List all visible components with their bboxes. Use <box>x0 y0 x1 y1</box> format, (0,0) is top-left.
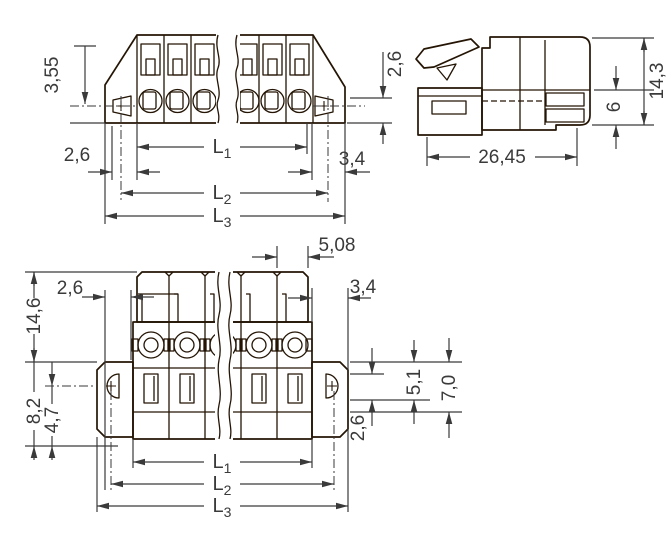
side-connector-body <box>416 37 590 135</box>
connector-technical-drawing: 3,55 2,6 2,6 3,4 L1 L2 L3 <box>0 0 671 536</box>
side-dimensions: 14,3 6 26,45 <box>427 38 668 168</box>
dim-back-right-offset: 3,4 <box>350 277 377 298</box>
dim-side-depth: 26,45 <box>478 147 526 168</box>
dim-back-pole-pitch: 5,08 <box>319 235 356 256</box>
dim-front-l2: L2 <box>213 182 232 207</box>
back-view: 5,08 2,6 3,4 14,6 8,2 4,7 2,6 5,1 7,0 L1… <box>24 235 462 520</box>
dim-front-l1: L1 <box>213 136 232 161</box>
dim-front-flange-height: 3,55 <box>42 57 63 94</box>
dim-back-total-height: 14,6 <box>24 298 45 335</box>
side-view: 14,3 6 26,45 <box>416 37 668 168</box>
dim-back-mid-height: 5,1 <box>404 369 425 395</box>
back-right-cross-icon <box>327 381 337 391</box>
dim-front-right-offset: 3,4 <box>339 149 366 170</box>
dim-back-lower-total: 7,0 <box>439 375 460 401</box>
back-latch-ticks <box>138 294 286 322</box>
drawing-page: 3,55 2,6 2,6 3,4 L1 L2 L3 <box>0 0 671 536</box>
dim-front-pitch-left: 2,6 <box>64 145 90 166</box>
dim-side-total-height: 14,3 <box>647 63 668 100</box>
front-view: 3,55 2,6 2,6 3,4 L1 L2 L3 <box>42 32 406 230</box>
back-connector-body <box>97 268 348 441</box>
dim-front-right-height: 2,6 <box>385 51 406 77</box>
front-break-lines <box>216 32 240 126</box>
front-connector-right-half <box>236 35 345 123</box>
dim-back-l3: L3 <box>213 495 232 520</box>
back-dimensions: 5,08 2,6 3,4 14,6 8,2 4,7 2,6 5,1 7,0 L1… <box>24 235 462 520</box>
dim-back-flange-inner: 4,7 <box>42 407 63 433</box>
back-break-lines <box>215 268 233 441</box>
dim-back-slot-height: 2,6 <box>348 415 369 441</box>
dim-front-l3: L3 <box>213 205 232 230</box>
side-latch-lever <box>416 39 479 68</box>
front-connector-left-half <box>105 35 219 123</box>
dim-back-pitch-left: 2,6 <box>57 278 83 299</box>
dim-side-lower-height: 6 <box>604 102 625 113</box>
